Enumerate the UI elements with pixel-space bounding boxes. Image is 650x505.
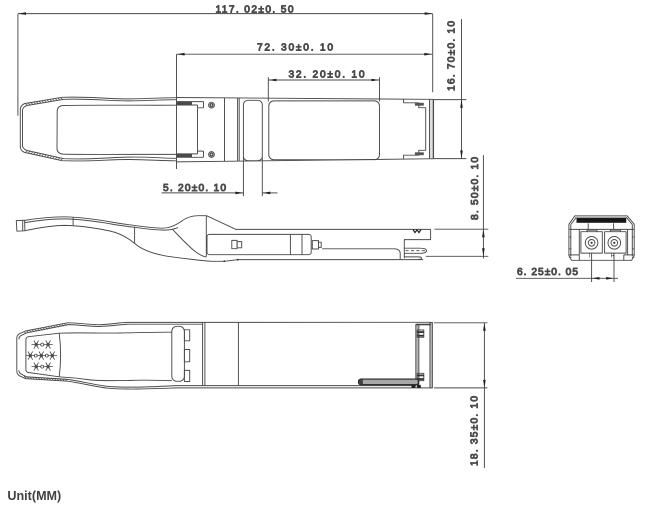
svg-text:6. 25±0. 05: 6. 25±0. 05 [517, 267, 578, 278]
svg-text:18. 35±0. 10: 18. 35±0. 10 [470, 396, 481, 466]
svg-text:16. 70±0. 10: 16. 70±0. 10 [446, 21, 457, 91]
svg-text:T: T [587, 253, 591, 260]
svg-text:R: R [610, 253, 615, 260]
svg-text:8. 50±0. 10: 8. 50±0. 10 [470, 157, 481, 220]
svg-text:Unit(MM): Unit(MM) [7, 489, 61, 503]
svg-text:32. 20±0. 10: 32. 20±0. 10 [289, 69, 365, 80]
svg-text:5. 20±0. 10: 5. 20±0. 10 [163, 183, 226, 194]
svg-text:72. 30±0. 10: 72. 30±0. 10 [257, 43, 333, 54]
svg-text:117. 02±0. 50: 117. 02±0. 50 [216, 4, 294, 15]
